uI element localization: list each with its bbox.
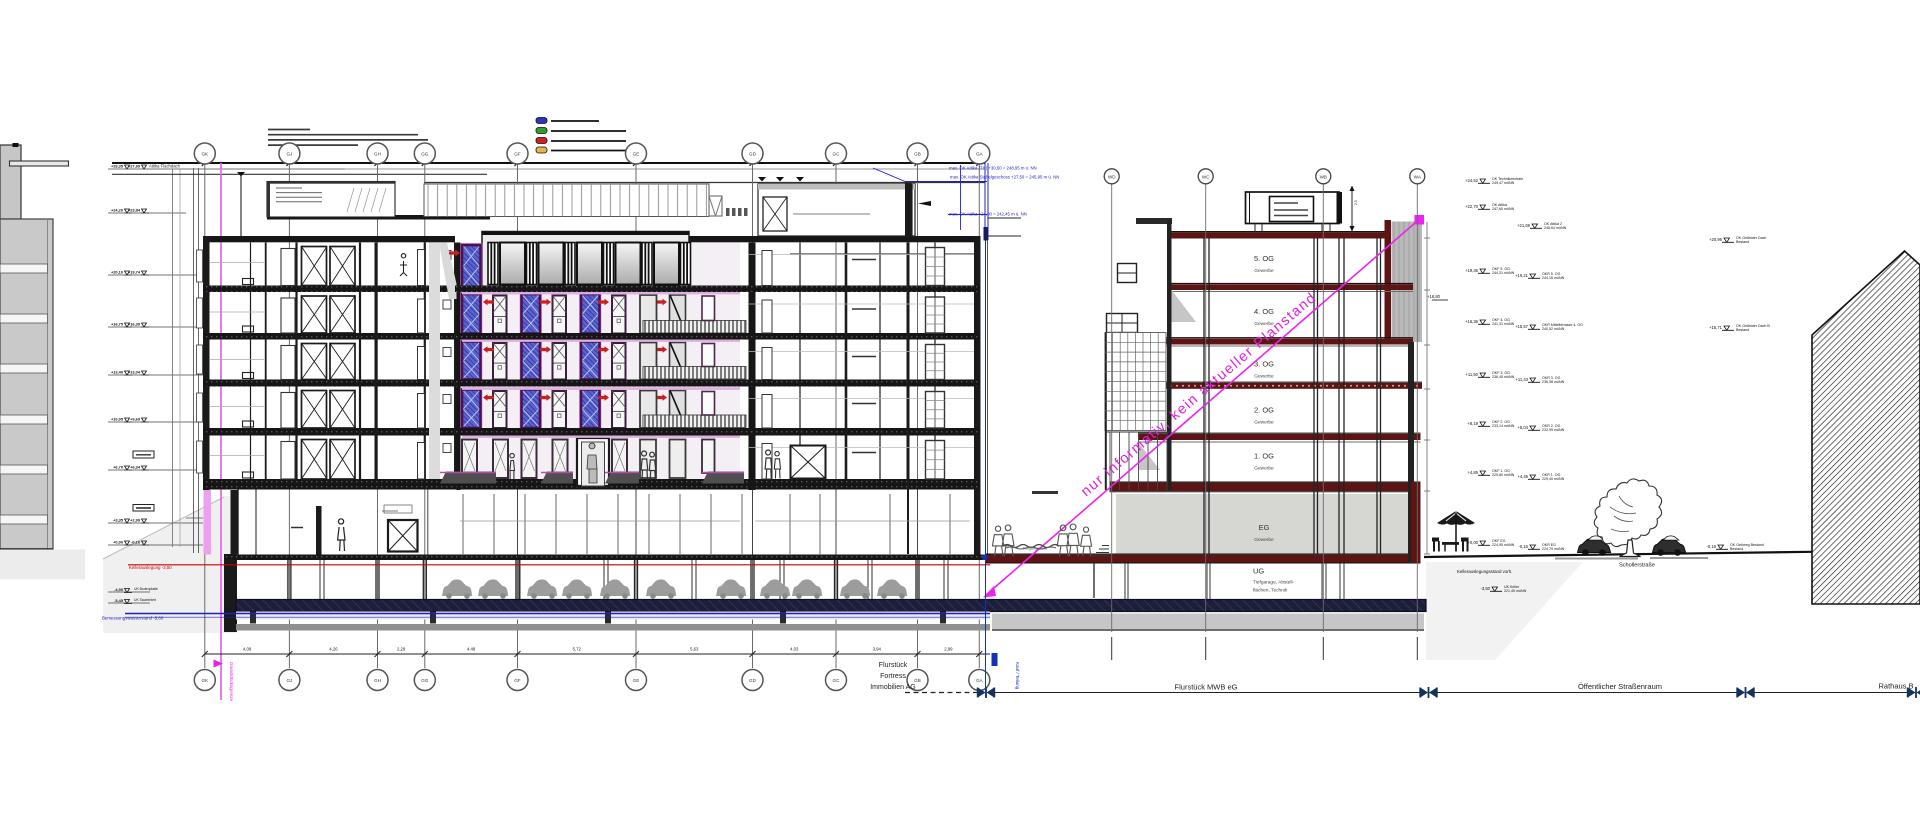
svg-text:-0,16: -0,16 bbox=[1706, 544, 1716, 549]
svg-text:GG: GG bbox=[421, 152, 429, 157]
svg-text:Bemessungswasserstand -5,60: Bemessungswasserstand -5,60 bbox=[102, 616, 164, 621]
svg-text:Rathaus B: Rathaus B bbox=[1878, 682, 1913, 691]
svg-text:GC: GC bbox=[833, 152, 841, 157]
svg-text:2,29: 2,29 bbox=[397, 647, 406, 652]
svg-text:GJ: GJ bbox=[286, 678, 292, 683]
svg-text:Fortress: Fortress bbox=[880, 673, 906, 680]
svg-text:Grundstücksgrenze: Grundstücksgrenze bbox=[229, 662, 234, 702]
svg-text:+2,99: +2,99 bbox=[130, 518, 141, 523]
svg-text:+23,84: +23,84 bbox=[128, 208, 141, 213]
svg-text:+27,99: +27,99 bbox=[128, 164, 141, 169]
svg-text:Attika Flachdach: Attika Flachdach bbox=[149, 163, 181, 168]
svg-text:+10,05: +10,05 bbox=[111, 417, 124, 422]
svg-text:241,31 müNN: 241,31 müNN bbox=[1492, 322, 1515, 326]
svg-text:+13,40: +13,40 bbox=[111, 370, 123, 375]
svg-text:GB: GB bbox=[914, 152, 921, 157]
svg-text:236,38 müNN: 236,38 müNN bbox=[1542, 380, 1565, 384]
svg-text:GF: GF bbox=[514, 152, 521, 157]
svg-text:Immobilien AG: Immobilien AG bbox=[870, 684, 916, 691]
svg-text:4. OG: 4. OG bbox=[1254, 307, 1274, 316]
svg-text:+16,39: +16,39 bbox=[128, 322, 141, 327]
svg-text:224,95 müNN: 224,95 müNN bbox=[1492, 543, 1515, 547]
svg-text:+16,75: +16,75 bbox=[111, 322, 124, 327]
svg-text:GG: GG bbox=[421, 678, 429, 683]
svg-text:GA: GA bbox=[976, 152, 984, 157]
svg-text:Bestand: Bestand bbox=[1736, 240, 1749, 244]
svg-text:GA: GA bbox=[976, 678, 984, 683]
svg-text:max. OK Attika (TH) +30,50 = 2: max. OK Attika (TH) +30,50 = 248,95 m ü.… bbox=[949, 166, 1037, 171]
svg-text:GK: GK bbox=[201, 152, 209, 157]
svg-text:229,80 müNN: 229,80 müNN bbox=[1492, 473, 1515, 477]
svg-text:1. OG: 1. OG bbox=[1254, 452, 1274, 461]
svg-text:240,52 müNN: 240,52 müNN bbox=[1542, 327, 1565, 331]
svg-text:247,65 müNN: 247,65 müNN bbox=[1492, 207, 1515, 211]
svg-text:-0,16: -0,16 bbox=[131, 540, 141, 545]
svg-text:Kauf / Teilung: Kauf / Teilung bbox=[1015, 662, 1020, 690]
svg-text:224,79 müNN: 224,79 müNN bbox=[1542, 547, 1565, 551]
svg-text:+15,71: +15,71 bbox=[1709, 325, 1723, 330]
svg-text:GK: GK bbox=[201, 678, 209, 683]
svg-text:GD: GD bbox=[749, 678, 757, 683]
svg-text:232,99 müNN: 232,99 müNN bbox=[1542, 428, 1565, 432]
svg-text:229,40 müNN: 229,40 müNN bbox=[1542, 477, 1565, 481]
svg-text:WD: WD bbox=[1108, 174, 1116, 179]
svg-text:5,72: 5,72 bbox=[573, 647, 582, 652]
svg-text:Gewerbe: Gewerbe bbox=[1254, 537, 1274, 543]
svg-text:+0,00: +0,00 bbox=[1467, 540, 1478, 545]
svg-text:GE: GE bbox=[633, 152, 640, 157]
svg-text:-3,50: -3,50 bbox=[1480, 586, 1490, 591]
svg-text:Gewerbe: Gewerbe bbox=[1254, 268, 1274, 274]
svg-text:+6,70: +6,70 bbox=[113, 465, 123, 470]
svg-text:+19,36: +19,36 bbox=[1465, 268, 1479, 273]
svg-text:Bestand: Bestand bbox=[1736, 328, 1749, 332]
svg-text:2. OG: 2. OG bbox=[1254, 406, 1274, 415]
svg-text:4,48: 4,48 bbox=[467, 647, 476, 652]
svg-text:Gewerbe: Gewerbe bbox=[1254, 420, 1274, 426]
svg-text:GE: GE bbox=[633, 678, 640, 683]
svg-text:+20,10: +20,10 bbox=[111, 270, 123, 275]
svg-text:+22,70: +22,70 bbox=[1465, 204, 1479, 209]
svg-text:+13,04: +13,04 bbox=[128, 370, 141, 375]
svg-text:Flurstück: Flurstück bbox=[879, 662, 908, 669]
svg-text:Gewerbe: Gewerbe bbox=[1254, 466, 1274, 472]
svg-text:Gewerbe: Gewerbe bbox=[1254, 374, 1274, 380]
svg-text:+24,20: +24,20 bbox=[111, 208, 123, 213]
svg-text:Kellerauslegungsstand vorh.: Kellerauslegungsstand vorh. bbox=[1457, 569, 1512, 574]
svg-text:+28,35: +28,35 bbox=[111, 164, 124, 169]
svg-text:4,26: 4,26 bbox=[329, 647, 338, 652]
svg-text:EG: EG bbox=[1259, 523, 1270, 532]
svg-text:2,99: 2,99 bbox=[944, 647, 953, 652]
svg-text:4,03: 4,03 bbox=[790, 647, 799, 652]
svg-text:Schollerstraße: Schollerstraße bbox=[1619, 563, 1655, 569]
svg-text:WC: WC bbox=[1202, 174, 1210, 179]
svg-text:Fußgängerzone: Fußgängerzone bbox=[1023, 547, 1047, 551]
svg-text:5,63: 5,63 bbox=[690, 647, 699, 652]
svg-text:+16,36: +16,36 bbox=[1465, 319, 1479, 324]
svg-text:233,14 müNN: 233,14 müNN bbox=[1492, 424, 1515, 428]
svg-text:246,64 müNN: 246,64 müNN bbox=[1544, 226, 1567, 230]
svg-text:GC: GC bbox=[833, 678, 841, 683]
svg-text:Flurstück MWB eG: Flurstück MWB eG bbox=[1175, 683, 1238, 692]
svg-text:3,94: 3,94 bbox=[873, 647, 882, 652]
svg-text:Bestand: Bestand bbox=[1730, 547, 1743, 551]
svg-text:236,45 müNN: 236,45 müNN bbox=[1492, 375, 1515, 379]
svg-text:+19,74: +19,74 bbox=[128, 270, 141, 275]
svg-text:+4,85: +4,85 bbox=[1467, 470, 1478, 475]
svg-text:+19,21: +19,21 bbox=[1515, 273, 1529, 278]
svg-text:+3,35: +3,35 bbox=[113, 518, 124, 523]
svg-text:+8,19: +8,19 bbox=[1467, 421, 1478, 426]
svg-text:UK Sauberkeit: UK Sauberkeit bbox=[134, 598, 156, 602]
svg-text:GH: GH bbox=[374, 152, 381, 157]
svg-text:+6,34: +6,34 bbox=[130, 465, 141, 470]
svg-text:GJ: GJ bbox=[286, 152, 292, 157]
svg-text:+21,69: +21,69 bbox=[1517, 223, 1531, 228]
svg-text:UG: UG bbox=[1253, 567, 1264, 576]
svg-text:2,5: 2,5 bbox=[1354, 200, 1358, 205]
svg-text:Tiefgarage, Abstell-: Tiefgarage, Abstell- bbox=[1253, 580, 1295, 586]
svg-text:Öffentlicher Straßenraum: Öffentlicher Straßenraum bbox=[1578, 682, 1662, 691]
svg-text:GB: GB bbox=[914, 678, 921, 683]
svg-text:max. OK Attika Staffelgeschoss: max. OK Attika Staffelgeschoss +27,50 = … bbox=[950, 175, 1059, 180]
svg-text:flächen, Technik: flächen, Technik bbox=[1253, 588, 1288, 594]
svg-text:5. OG: 5. OG bbox=[1254, 254, 1274, 263]
svg-text:+9,69: +9,69 bbox=[130, 417, 141, 422]
svg-text:+15,57: +15,57 bbox=[1515, 324, 1529, 329]
svg-text:WB: WB bbox=[1320, 174, 1327, 179]
svg-text:Kellerauslegung -3,50: Kellerauslegung -3,50 bbox=[129, 565, 172, 570]
svg-text:-5,45: -5,45 bbox=[114, 598, 124, 603]
svg-text:+0,00: +0,00 bbox=[113, 540, 123, 545]
svg-text:WA: WA bbox=[1414, 174, 1422, 179]
svg-text:+11,50: +11,50 bbox=[1465, 372, 1478, 377]
svg-text:GF: GF bbox=[514, 678, 521, 683]
svg-text:249,47 müNN: 249,47 müNN bbox=[1492, 181, 1515, 185]
svg-text:+16,80: +16,80 bbox=[1427, 294, 1441, 299]
svg-text:+20,95: +20,95 bbox=[1709, 237, 1723, 242]
svg-text:+11,43: +11,43 bbox=[1515, 377, 1528, 382]
svg-text:-0,16: -0,16 bbox=[1518, 544, 1528, 549]
svg-text:+8,04: +8,04 bbox=[1517, 425, 1528, 430]
svg-text:GH: GH bbox=[374, 678, 381, 683]
svg-text:244,31 müNN: 244,31 müNN bbox=[1492, 271, 1515, 275]
svg-text:-4,90: -4,90 bbox=[114, 587, 123, 592]
svg-text:+24,52: +24,52 bbox=[1465, 178, 1479, 183]
svg-text:244,16 müNN: 244,16 müNN bbox=[1542, 276, 1565, 280]
svg-text:+4,45: +4,45 bbox=[1517, 474, 1528, 479]
svg-text:UK Bodenplatte: UK Bodenplatte bbox=[134, 587, 158, 591]
svg-text:4,09: 4,09 bbox=[243, 647, 252, 652]
svg-text:GD: GD bbox=[749, 152, 757, 157]
svg-text:221,45 müNN: 221,45 müNN bbox=[1504, 589, 1527, 593]
